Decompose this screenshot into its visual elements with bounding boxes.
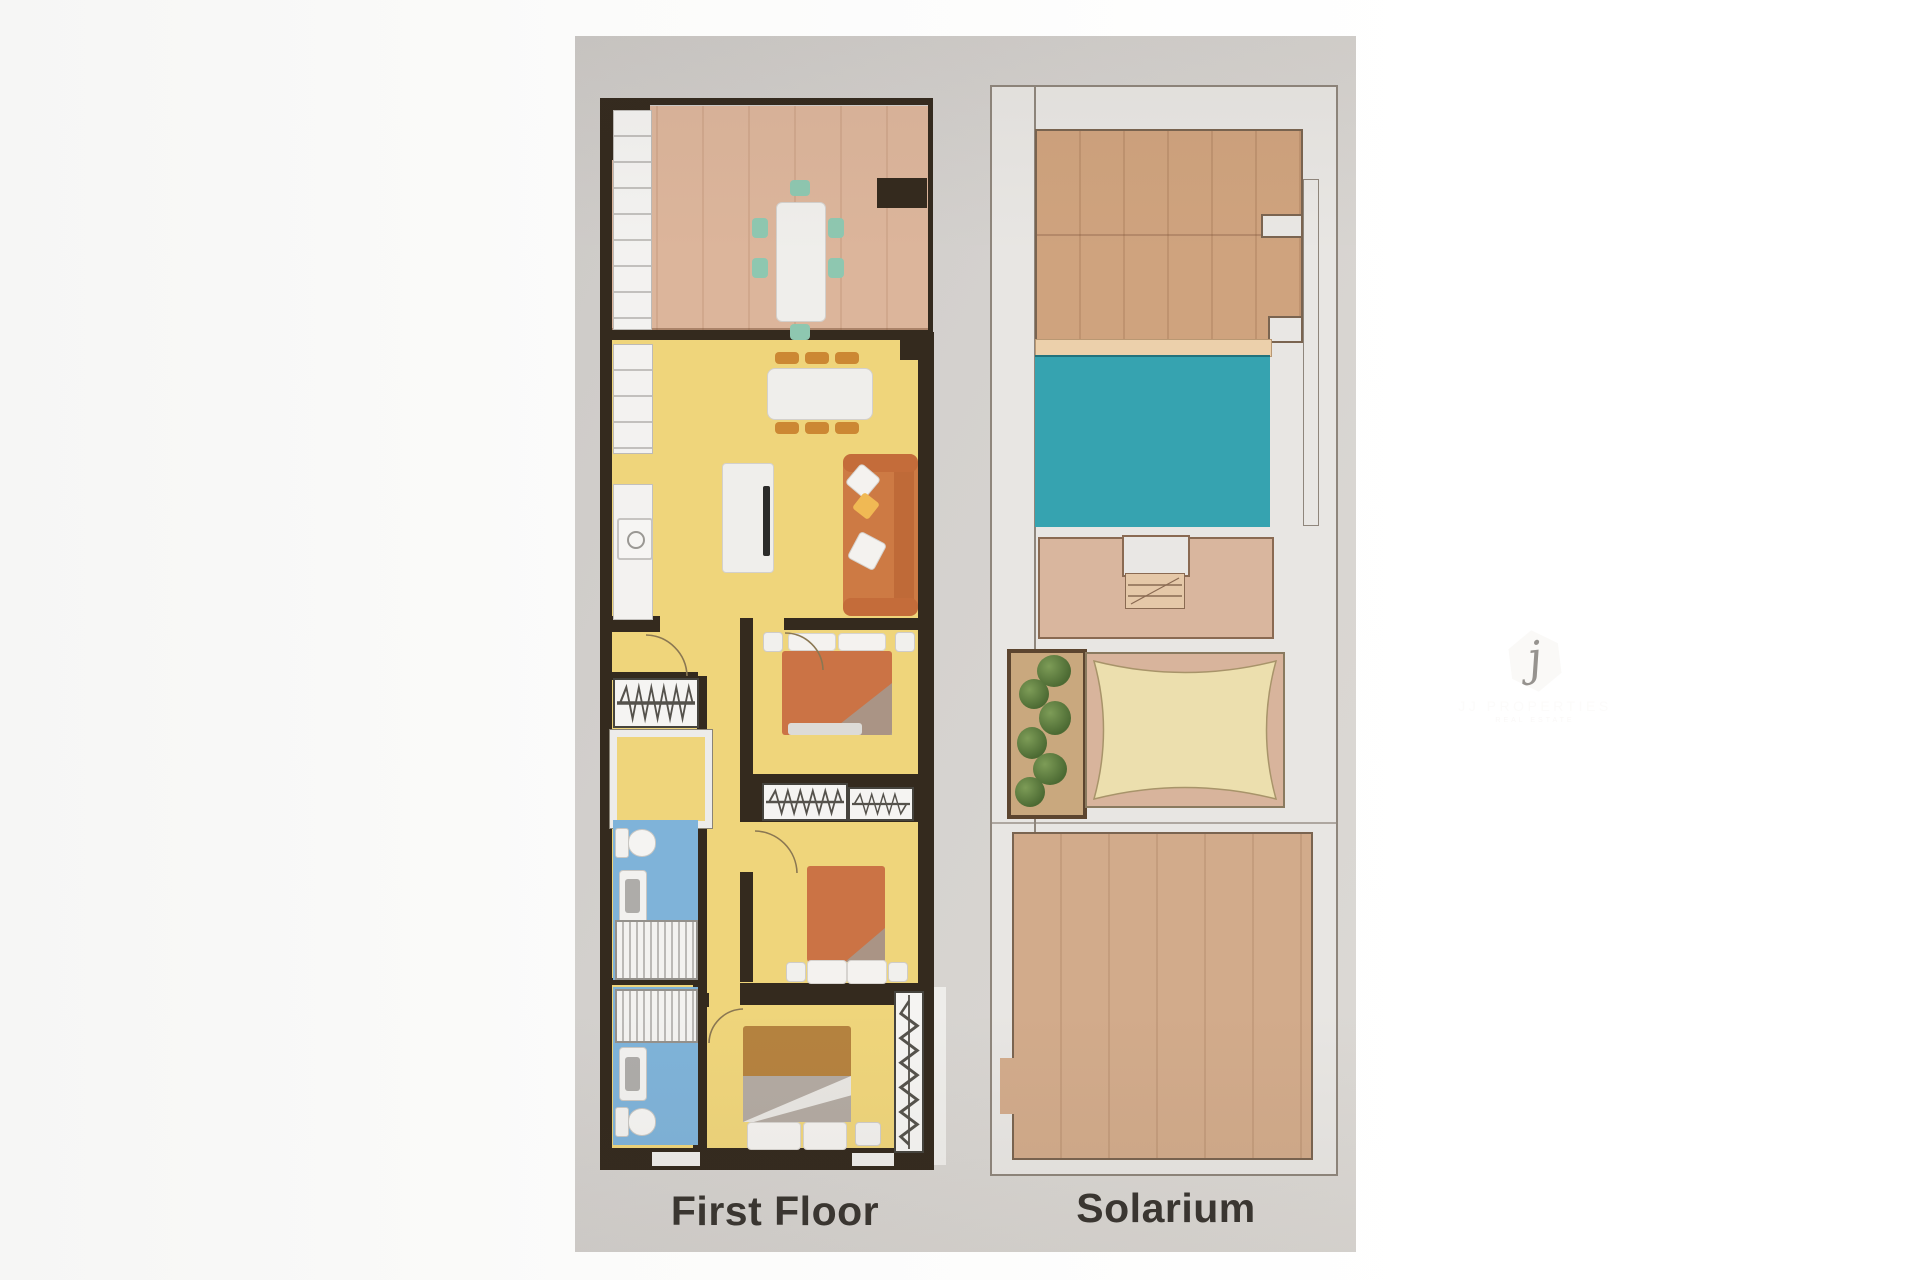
right-side-strip — [934, 987, 946, 1165]
hall-wardrobe — [613, 678, 699, 728]
solarium-label: Solarium — [1035, 1185, 1297, 1232]
toilet-tank — [615, 828, 629, 858]
dining-chair — [805, 352, 829, 364]
platform-notch — [1122, 535, 1190, 577]
terrace-planter — [877, 178, 927, 208]
wall-terrace-right — [928, 98, 933, 338]
storage-closet — [610, 730, 712, 828]
shade-sail — [1087, 654, 1283, 806]
bed-pillow — [847, 960, 887, 984]
living-window-strip — [613, 344, 653, 454]
solarium-plan — [990, 85, 1338, 1176]
deck-notch — [1261, 214, 1303, 238]
entrance-threshold — [652, 1152, 700, 1166]
right-walkway-strip — [1303, 179, 1319, 526]
dining-table — [767, 368, 873, 420]
door-arc — [708, 1008, 744, 1044]
terrace-window-strip — [613, 110, 652, 330]
dining-chair — [775, 352, 799, 364]
toilet-tank — [615, 1107, 629, 1137]
bottom-door — [852, 1153, 894, 1166]
first-floor-label: First Floor — [640, 1188, 910, 1235]
deck-notch — [1268, 316, 1303, 343]
bed-bench — [788, 723, 862, 735]
sofa-backrest — [894, 460, 914, 610]
nightstand — [763, 632, 783, 652]
dining-chair — [835, 352, 859, 364]
terrace-chair — [790, 324, 810, 340]
nightstand — [786, 962, 806, 982]
bed-2 — [807, 866, 885, 962]
bathroom-1 — [613, 820, 698, 980]
shade-sail-area — [1085, 652, 1285, 808]
door-arc — [644, 634, 688, 678]
wall-terrace-separator — [610, 330, 928, 340]
terrace-chair — [828, 218, 844, 238]
watermark-brand: JJ PROPERTIES — [1453, 698, 1617, 714]
lower-sun-deck — [1012, 832, 1313, 1160]
deck-access-opening — [1000, 1058, 1016, 1114]
shower — [615, 920, 698, 980]
bathroom-sink — [619, 870, 647, 924]
door-arc — [784, 631, 824, 671]
wall-bedroom2-left — [740, 872, 753, 982]
bathroom-sink — [619, 1047, 647, 1101]
watermark-hexagon: j — [1502, 627, 1567, 696]
bathroom-2 — [613, 987, 698, 1145]
nightstand — [888, 962, 908, 982]
dining-chair — [835, 422, 859, 434]
toilet-bowl — [628, 1108, 656, 1136]
terrace-chair — [828, 258, 844, 278]
terrace-chair — [752, 258, 768, 278]
watermark-monogram: j — [1524, 630, 1545, 685]
watermark-tagline: REAL ESTATE — [1483, 717, 1587, 724]
bed-pillow — [807, 960, 847, 984]
door-arc — [754, 830, 798, 874]
tv-screen — [763, 486, 770, 556]
printed-page: j JJ PROPERTIES REAL ESTATE First Floor … — [575, 36, 1356, 1252]
shower — [615, 989, 698, 1043]
wall-bedroom2-bottom — [740, 983, 920, 1005]
pool-steps — [1125, 573, 1185, 609]
dining-chair — [775, 422, 799, 434]
wardrobe — [848, 787, 914, 821]
wardrobe — [762, 783, 848, 821]
planter — [1007, 649, 1087, 819]
swimming-pool — [1035, 355, 1270, 527]
terrace-chair — [752, 218, 768, 238]
terrace-chair — [790, 180, 810, 196]
nightstand — [895, 632, 915, 652]
nightstand — [855, 1122, 881, 1146]
terrace-table — [776, 202, 826, 322]
kitchen-sink — [617, 518, 653, 560]
sofa-arm — [843, 598, 918, 616]
terrace — [612, 106, 928, 330]
built-in-wardrobe — [894, 991, 924, 1153]
bed-3 — [743, 1026, 851, 1150]
wall-bedroom1-top-b — [784, 618, 920, 630]
toilet-bowl — [628, 829, 656, 857]
walkway-divider — [992, 822, 1336, 824]
first-floor-plan — [598, 94, 998, 1180]
dining-chair — [805, 422, 829, 434]
wall-bedroom1-left — [740, 618, 753, 776]
